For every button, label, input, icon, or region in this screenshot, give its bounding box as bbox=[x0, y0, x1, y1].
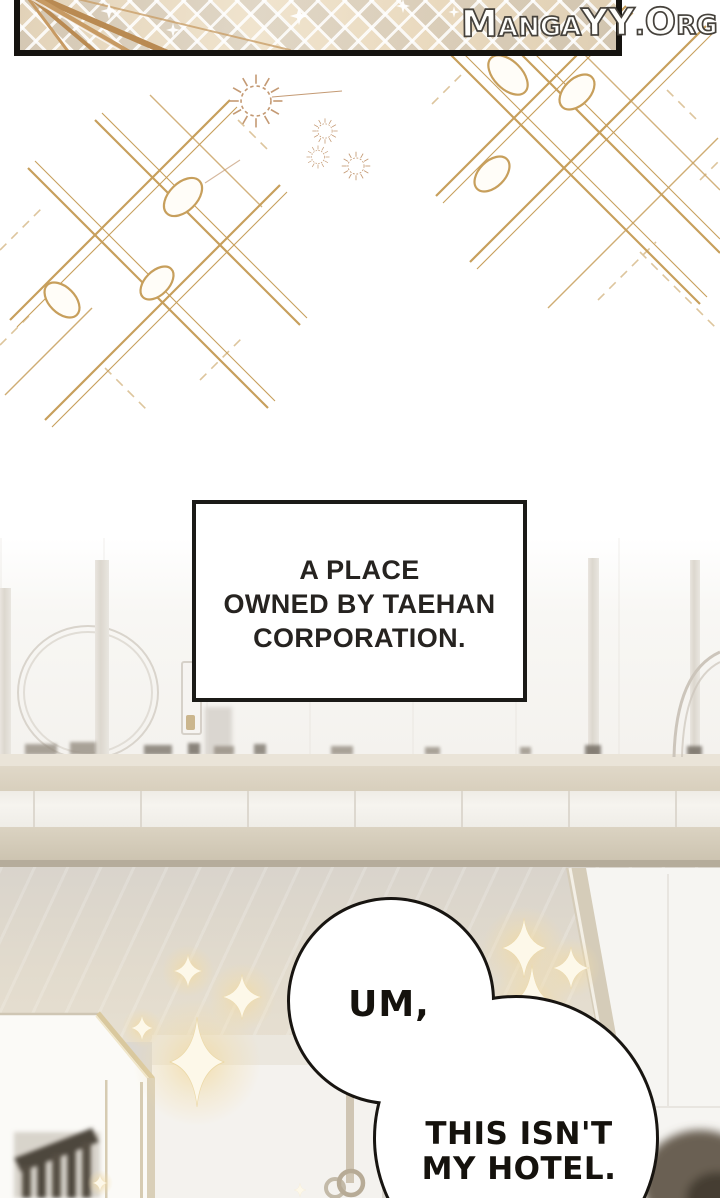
lower-room bbox=[0, 867, 720, 1198]
frieze-divider bbox=[461, 791, 463, 827]
caption-line: CORPORATION. bbox=[196, 621, 523, 655]
glint-icon bbox=[396, 0, 410, 13]
ledge-beige-band bbox=[0, 766, 720, 791]
caption-line: A PLACE bbox=[196, 553, 523, 587]
frieze-divider bbox=[568, 791, 570, 827]
sparkle-burst-icon bbox=[342, 152, 371, 181]
pillar-right-1 bbox=[588, 558, 599, 757]
sparkle-burst-icon bbox=[230, 75, 283, 128]
door-knob bbox=[186, 715, 195, 730]
glint-icon bbox=[166, 23, 180, 37]
sparkle-burst-icon bbox=[307, 146, 330, 169]
comic-page: UM, THIS ISN'T MY HOTEL. bbox=[0, 0, 720, 1198]
ledge-lower-band bbox=[0, 827, 720, 860]
glint-icon bbox=[448, 6, 459, 17]
watermark-text: M bbox=[461, 2, 498, 45]
gold-lattice-left-icon bbox=[0, 95, 307, 427]
frieze-divider bbox=[33, 791, 35, 827]
pillar-left-edge bbox=[0, 588, 11, 757]
ledge-top bbox=[0, 754, 720, 766]
sparkle-burst-icon bbox=[312, 118, 337, 143]
frieze-divider bbox=[675, 791, 677, 827]
ceiling bbox=[0, 867, 720, 1042]
frieze-divider bbox=[140, 791, 142, 827]
sparkle-bursts bbox=[205, 75, 370, 183]
ceiling-streaks bbox=[0, 867, 720, 1042]
frieze-divider bbox=[247, 791, 249, 827]
ledge-white-frieze bbox=[0, 791, 720, 827]
pillar-right-2 bbox=[690, 560, 700, 757]
frieze-divider bbox=[354, 791, 356, 827]
caption-line: OWNED BY TAEHAN bbox=[196, 587, 523, 621]
circle-window bbox=[17, 625, 159, 760]
pillar-left bbox=[95, 560, 109, 757]
site-watermark: MANGAYY.ORG bbox=[461, 0, 718, 47]
glint-icon bbox=[290, 7, 308, 25]
caption-box: A PLACE OWNED BY TAEHAN CORPORATION. bbox=[192, 500, 527, 702]
ledge-shadow-line bbox=[0, 860, 720, 867]
